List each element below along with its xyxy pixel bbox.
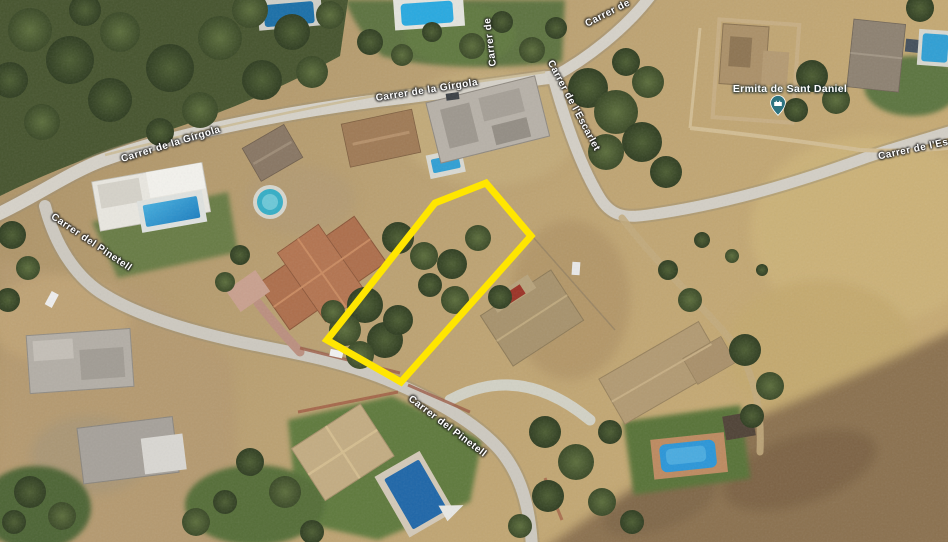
aerial-imagery [0,0,948,542]
photo-grain [0,0,948,542]
satellite-map[interactable]: Carrer de la Gírgola Carrer de la Gírgol… [0,0,948,542]
historic-building-pin-icon[interactable] [770,95,786,116]
poi-label-ermita[interactable]: Ermita de Sant Daniel [733,84,847,95]
